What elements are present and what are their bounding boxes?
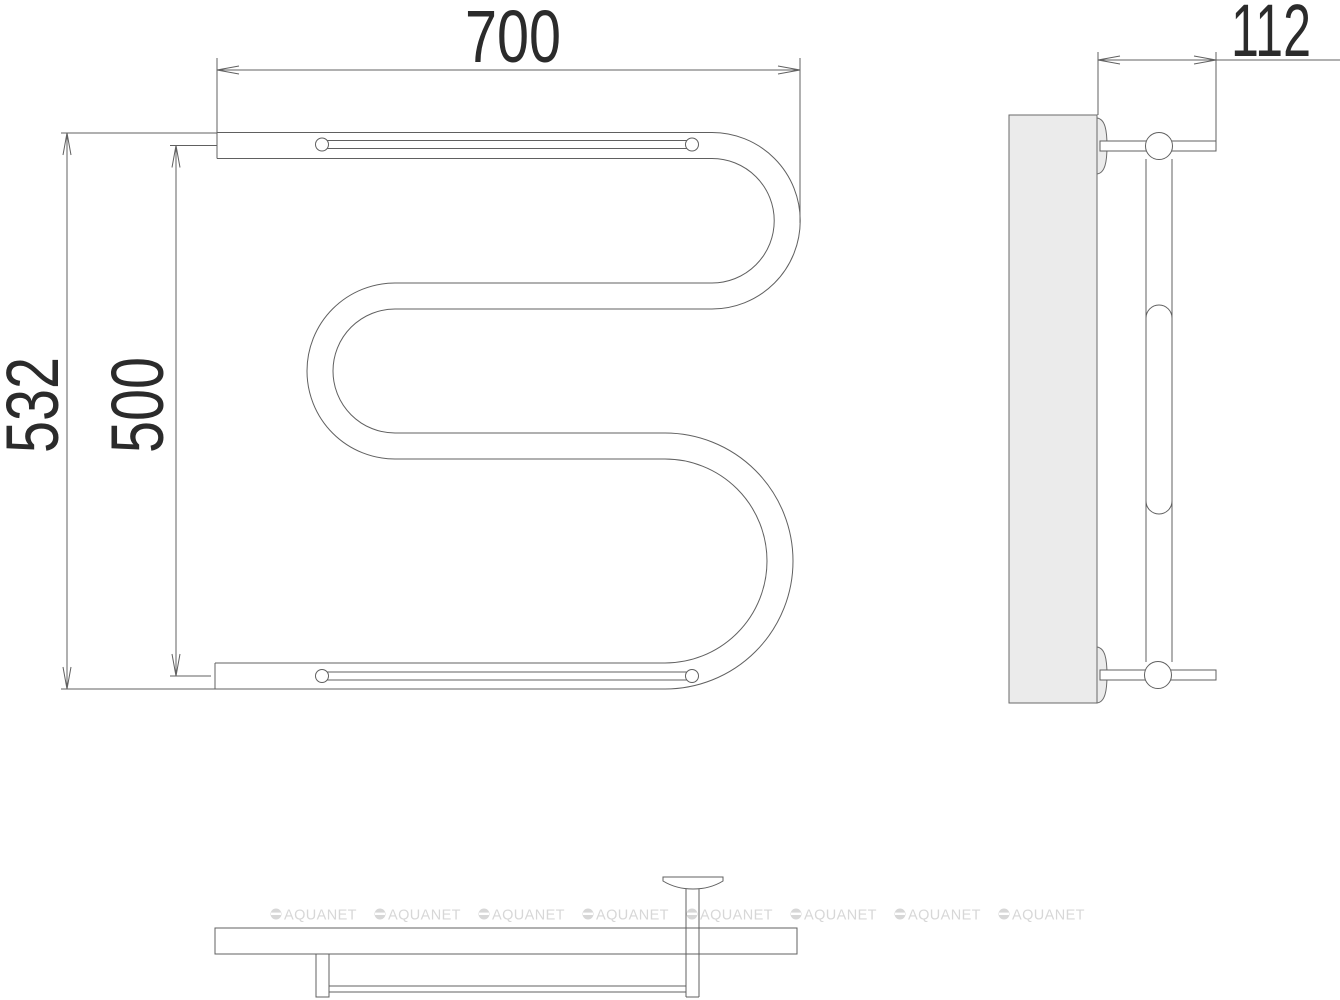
dim-500-text: 500: [96, 357, 179, 453]
side-tube-lower-cap: [1146, 501, 1172, 514]
watermark-logo-slit: [687, 913, 697, 915]
top-bracket-rod: [322, 141, 692, 149]
dim-532-text: 532: [0, 357, 74, 453]
watermark-logo-slit: [791, 913, 801, 915]
technical-drawing-canvas: 700 532 500 112: [0, 0, 1340, 1000]
watermark-text: AQUANET: [492, 908, 565, 924]
side-bottom-ball: [1145, 662, 1172, 689]
watermark-row: AQUANET AQUANET AQUANET AQUANET AQUANET …: [271, 908, 1085, 924]
top-rod-left-ball: [316, 138, 329, 151]
watermark-logo-slit: [999, 913, 1009, 915]
watermark-text: AQUANET: [700, 908, 773, 924]
watermark-logo-slit: [375, 913, 385, 915]
watermark: AQUANET: [271, 908, 357, 924]
dimension-depth-112: 112: [1098, 0, 1340, 141]
watermark-logo-slit: [895, 913, 905, 915]
dimension-height-500: 500: [96, 146, 217, 677]
watermark-logo-slit: [583, 913, 593, 915]
side-tube-upper-cap: [1146, 305, 1172, 318]
dim-700-text: 700: [465, 0, 561, 78]
bottom-rod-left-ball: [316, 670, 329, 683]
watermark-text: AQUANET: [804, 908, 877, 924]
side-view: [1009, 115, 1216, 703]
top-view-left-leg: [316, 954, 329, 997]
watermark: AQUANET: [791, 908, 877, 924]
watermark: AQUANET: [999, 908, 1085, 924]
bottom-rod-right-ball: [686, 670, 699, 683]
top-rod-right-ball: [686, 138, 699, 151]
wall-plate: [1009, 115, 1097, 703]
watermark: AQUANET: [479, 908, 565, 924]
watermark: AQUANET: [375, 908, 461, 924]
watermark-text: AQUANET: [388, 908, 461, 924]
watermark-text: AQUANET: [596, 908, 669, 924]
rail-tube-body: [215, 146, 787, 677]
top-view: [215, 877, 797, 997]
watermark-text: AQUANET: [1012, 908, 1085, 924]
top-view-rear-bar: [329, 986, 686, 992]
watermark-text: AQUANET: [284, 908, 357, 924]
rail-tube-outline: [215, 146, 787, 677]
front-view: [215, 133, 787, 690]
watermark: AQUANET: [583, 908, 669, 924]
dim-112-text: 112: [1231, 0, 1311, 72]
towel-rail-drawing: 700 532 500 112: [0, 0, 1340, 1000]
top-view-tube: [215, 928, 797, 954]
top-view-wall-flange: [663, 877, 723, 889]
watermark-text: AQUANET: [908, 908, 981, 924]
watermark-logo-slit: [271, 913, 281, 915]
dimension-width-700: 700: [217, 0, 800, 223]
side-top-ball: [1146, 133, 1173, 160]
watermark: AQUANET: [895, 908, 981, 924]
watermark: AQUANET: [687, 908, 773, 924]
bottom-bracket-rod: [322, 672, 692, 680]
watermark-logo-slit: [479, 913, 489, 915]
